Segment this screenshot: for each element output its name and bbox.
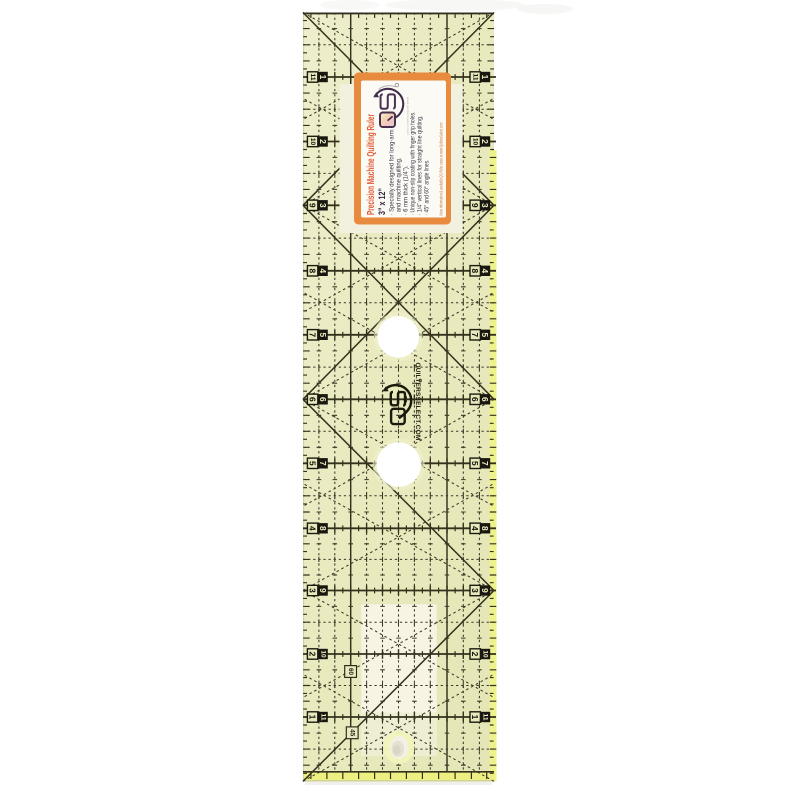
svg-text:2: 2 <box>480 139 490 144</box>
svg-text:6: 6 <box>480 397 490 402</box>
svg-text:10: 10 <box>319 650 326 658</box>
svg-text:8: 8 <box>308 268 318 273</box>
svg-text:45: 45 <box>349 729 356 737</box>
svg-text:8: 8 <box>318 526 328 531</box>
svg-text:6: 6 <box>318 397 328 402</box>
svg-text:2: 2 <box>318 139 328 144</box>
svg-text:· Unique non-slip coating with: · Unique non-slip coating with finger gr… <box>411 111 417 215</box>
svg-text:4: 4 <box>318 268 328 273</box>
svg-text:2: 2 <box>470 652 480 657</box>
svg-text:1: 1 <box>308 715 318 720</box>
svg-text:5: 5 <box>308 461 318 466</box>
svg-text:11: 11 <box>319 714 326 721</box>
svg-text:QUILTERSSELECT.COM: QUILTERSSELECT.COM <box>414 363 421 441</box>
svg-text:1: 1 <box>480 75 490 80</box>
svg-text:4: 4 <box>308 526 318 531</box>
svg-text:9: 9 <box>480 588 490 593</box>
svg-text:9: 9 <box>308 203 318 208</box>
svg-text:4: 4 <box>470 526 480 531</box>
svg-text:3: 3 <box>308 588 318 593</box>
svg-text:10: 10 <box>482 650 489 658</box>
svg-text:9: 9 <box>318 588 328 593</box>
svg-text:7: 7 <box>318 461 328 466</box>
svg-text:www.quiltersselect.com: www.quiltersselect.com <box>406 97 410 135</box>
svg-text:10: 10 <box>309 138 316 146</box>
svg-text:Precision Machine Quilting Rul: Precision Machine Quilting Ruler <box>366 114 377 215</box>
svg-text:· 1/4” vertical lines for stra: · 1/4” vertical lines for straight line … <box>418 115 424 215</box>
svg-text:11: 11 <box>482 714 489 721</box>
svg-text:2: 2 <box>308 652 318 657</box>
svg-text:1: 1 <box>470 715 480 720</box>
svg-text:3” x 12”: 3” x 12” <box>377 188 388 215</box>
svg-text:4: 4 <box>480 268 490 273</box>
svg-text:· 6 mm thick (1/4”).: · 6 mm thick (1/4”). <box>404 165 410 215</box>
svg-text:7: 7 <box>470 332 480 337</box>
svg-text:11: 11 <box>309 74 316 81</box>
svg-text:3: 3 <box>318 203 328 208</box>
svg-text:· 45° and 60° angle lines.: · 45° and 60° angle lines. <box>425 159 431 215</box>
svg-text:10: 10 <box>472 138 479 146</box>
svg-text:5: 5 <box>318 332 328 337</box>
svg-text:5: 5 <box>480 332 490 337</box>
svg-text:More information & available Q: More information & available QS Ruler si… <box>439 122 444 215</box>
svg-text:3: 3 <box>470 588 480 593</box>
svg-text:9: 9 <box>470 203 480 208</box>
svg-text:7: 7 <box>480 461 490 466</box>
svg-text:· Specially designed for long-: · Specially designed for long-arm <box>390 130 396 216</box>
svg-text:11: 11 <box>472 74 479 81</box>
svg-text:8: 8 <box>480 526 490 531</box>
svg-text:6: 6 <box>470 397 480 402</box>
svg-text:6: 6 <box>308 397 318 402</box>
svg-text:8: 8 <box>470 268 480 273</box>
svg-text:and machine quilting.: and machine quilting. <box>397 157 403 215</box>
svg-text:7: 7 <box>308 332 318 337</box>
svg-text:60: 60 <box>347 668 354 676</box>
svg-text:3: 3 <box>480 203 490 208</box>
svg-text:5: 5 <box>470 461 480 466</box>
svg-text:1: 1 <box>318 75 328 80</box>
